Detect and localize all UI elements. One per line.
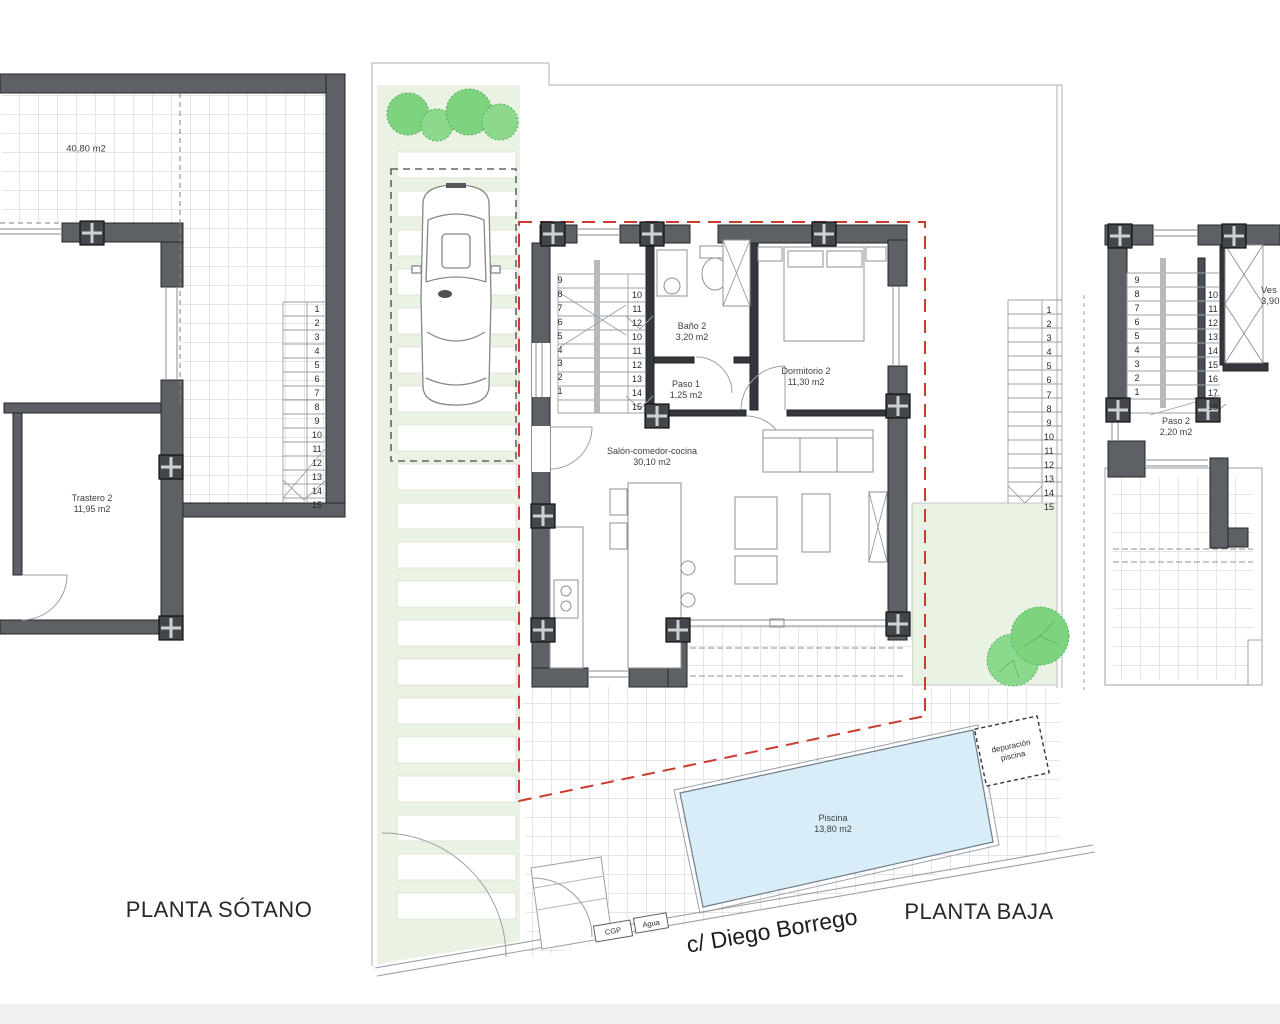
stair-step-number: 7 <box>550 302 570 316</box>
paso1-label: Paso 1 1,25 m2 <box>670 379 703 401</box>
stair-step-number: 9 <box>550 274 570 288</box>
stair-step-number: 6 <box>304 372 330 386</box>
stair-step-number: 10 <box>1200 288 1226 302</box>
wardrobe <box>1225 245 1263 363</box>
stair-step-number: 9 <box>304 414 330 428</box>
stair-step-number: 5 <box>550 330 570 344</box>
stair-step-number: 10 <box>304 428 330 442</box>
stair-step-number: 4 <box>550 344 570 358</box>
basement-plan <box>0 74 345 640</box>
stair-step-number: 15 <box>624 400 650 414</box>
stair-step-number: 3 <box>304 330 330 344</box>
stair-step-number: 8 <box>550 288 570 302</box>
stair-step-number: 16 <box>1200 372 1226 386</box>
paso2-label: Paso 2 2,20 m2 <box>1160 416 1193 438</box>
first-floor-stair-numbers-left: 987654321 <box>1124 273 1150 399</box>
bano2-label: Baño 2 3,20 m2 <box>676 321 709 343</box>
exterior-stair-numbers: 123456789101112131415 <box>1036 303 1062 514</box>
ground-stair-numbers-right: 101112101112131415 <box>624 288 650 414</box>
car-icon <box>412 183 500 405</box>
first-floor-plan <box>1084 224 1280 690</box>
stair-step-number: 6 <box>550 316 570 330</box>
stair-step-number: 15 <box>1200 358 1226 372</box>
stair-step-number: 14 <box>624 386 650 400</box>
first-floor-stair-numbers-right: 101112131415161718 <box>1200 288 1226 414</box>
stair-step-number: 10 <box>624 288 650 302</box>
stair-step-number: 9 <box>1124 273 1150 287</box>
bedroom-furniture <box>723 240 886 341</box>
stair-step-number: 17 <box>1200 386 1226 400</box>
stair-step-number: 4 <box>1124 343 1150 357</box>
stair-step-number: 6 <box>1036 373 1062 387</box>
stair-step-number: 11 <box>1036 444 1062 458</box>
ground-stair-numbers-left: 987654321 <box>550 274 570 399</box>
stair-step-number: 13 <box>1036 472 1062 486</box>
stair-step-number: 12 <box>1200 316 1226 330</box>
stair-step-number: 11 <box>1200 302 1226 316</box>
stair-step-number: 2 <box>550 371 570 385</box>
stair-step-number: 15 <box>304 498 330 512</box>
stair-step-number: 1 <box>550 385 570 399</box>
stair-step-number: 2 <box>1124 371 1150 385</box>
stair-step-number: 12 <box>624 358 650 372</box>
stair-step-number: 3 <box>550 357 570 371</box>
vestidor-label: Ves 3,90 <box>1261 285 1280 307</box>
basement-stair-numbers: 123456789101112131415 <box>304 302 330 512</box>
salon-label: Salón-comedor-cocina 30,10 m2 <box>607 446 697 468</box>
door-arc <box>22 575 67 620</box>
stair-step-number: 7 <box>1124 301 1150 315</box>
stair-step-number: 1 <box>1124 385 1150 399</box>
stair-step-number: 15 <box>1036 500 1062 514</box>
floorplan-sheet: 40,80 m2 Trastero 2 11,95 m2 Baño 2 3,20… <box>0 0 1280 1024</box>
stair-step-number: 1 <box>304 302 330 316</box>
stair-step-number: 11 <box>304 442 330 456</box>
stair-step-number: 4 <box>1036 345 1062 359</box>
stair-step-number: 6 <box>1124 315 1150 329</box>
stair-step-number: 2 <box>304 316 330 330</box>
stair-step-number: 13 <box>1200 330 1226 344</box>
stair-step-number: 11 <box>624 302 650 316</box>
stair-step-number: 13 <box>304 470 330 484</box>
stair-step-number: 1 <box>1036 303 1062 317</box>
trastero-label: Trastero 2 11,95 m2 <box>72 493 113 515</box>
stair-step-number: 8 <box>1124 287 1150 301</box>
bathroom-fixtures <box>657 246 730 296</box>
stair-step-number: 9 <box>1036 416 1062 430</box>
ground-floor-plan <box>372 63 1095 976</box>
stair-step-number: 4 <box>304 344 330 358</box>
floorplan-drawing <box>0 0 1280 1024</box>
stair-step-number: 12 <box>304 456 330 470</box>
stair-step-number: 5 <box>304 358 330 372</box>
stair-step-number: 12 <box>1036 458 1062 472</box>
stair-step-number: 3 <box>1036 331 1062 345</box>
stair-step-number: 14 <box>1200 344 1226 358</box>
stair-step-number: 10 <box>1036 430 1062 444</box>
basement-title: PLANTA SÓTANO <box>126 897 313 923</box>
stair-step-number: 14 <box>304 484 330 498</box>
stair-step-number: 8 <box>1036 402 1062 416</box>
stair-step-number: 3 <box>1124 357 1150 371</box>
stair-step-number: 11 <box>624 344 650 358</box>
stair-step-number: 13 <box>624 372 650 386</box>
dormitorio2-label: Dormitorio 2 11,30 m2 <box>781 366 830 388</box>
stair-step-number: 5 <box>1124 329 1150 343</box>
basement-open-area-label: 40,80 m2 <box>66 144 106 155</box>
piscina-label: Piscina 13,80 m2 <box>814 813 852 835</box>
ground-title: PLANTA BAJA <box>904 899 1053 925</box>
stair-step-number: 18 <box>1200 400 1226 414</box>
stair-step-number: 12 <box>624 316 650 330</box>
stair-step-number: 5 <box>1036 359 1062 373</box>
stair-step-number: 7 <box>1036 388 1062 402</box>
stair-step-number: 8 <box>304 400 330 414</box>
stair-step-number: 7 <box>304 386 330 400</box>
stair-step-number: 2 <box>1036 317 1062 331</box>
stair-step-number: 14 <box>1036 486 1062 500</box>
stair-step-number: 10 <box>624 330 650 344</box>
